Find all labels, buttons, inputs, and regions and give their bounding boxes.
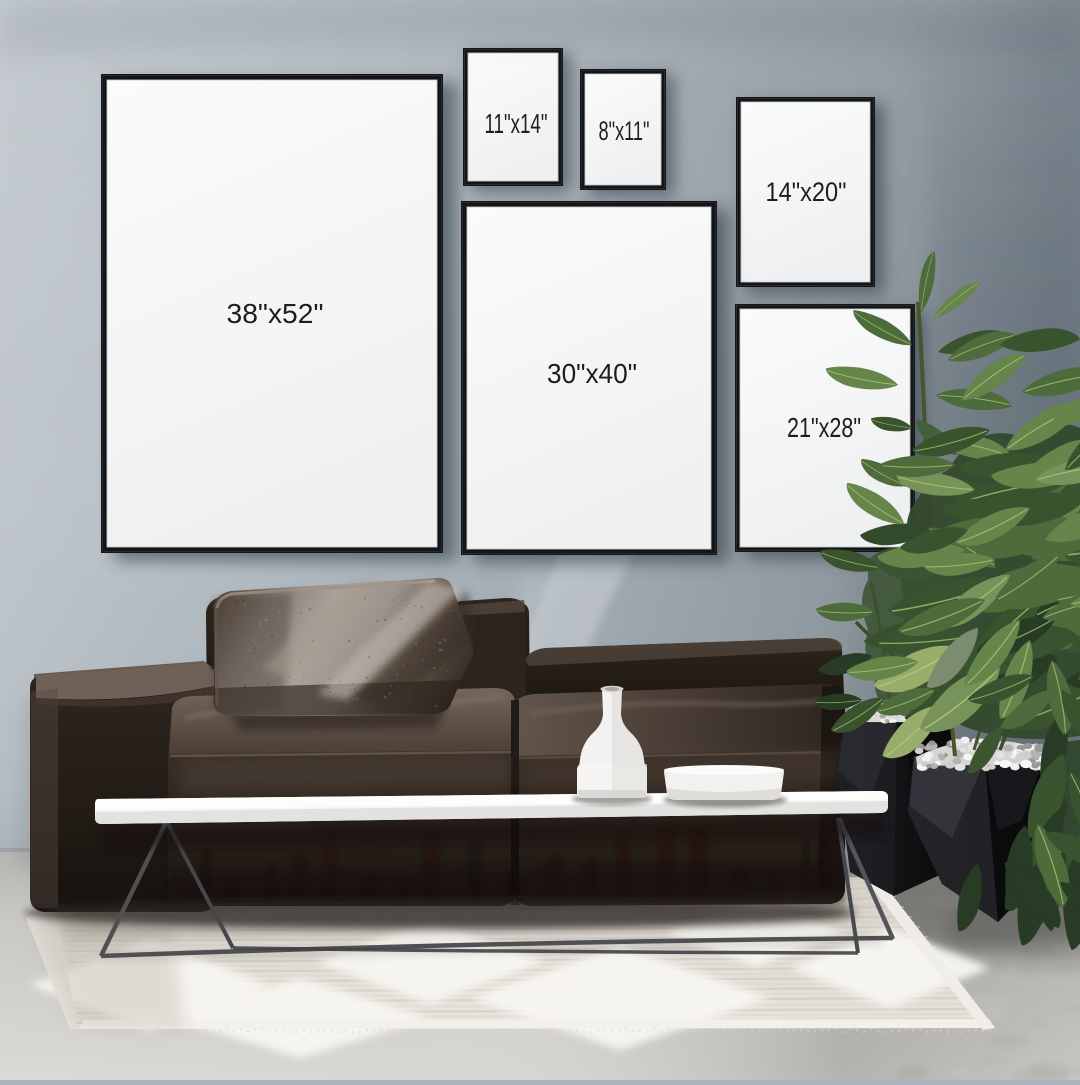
svg-text:14"x20": 14"x20" bbox=[766, 177, 847, 207]
svg-text:11"x14": 11"x14" bbox=[485, 108, 548, 139]
svg-text:38"x52": 38"x52" bbox=[227, 298, 324, 329]
svg-text:21"x28": 21"x28" bbox=[787, 412, 861, 443]
svg-text:30"x40": 30"x40" bbox=[547, 358, 637, 389]
svg-text:8"x11": 8"x11" bbox=[599, 116, 650, 146]
